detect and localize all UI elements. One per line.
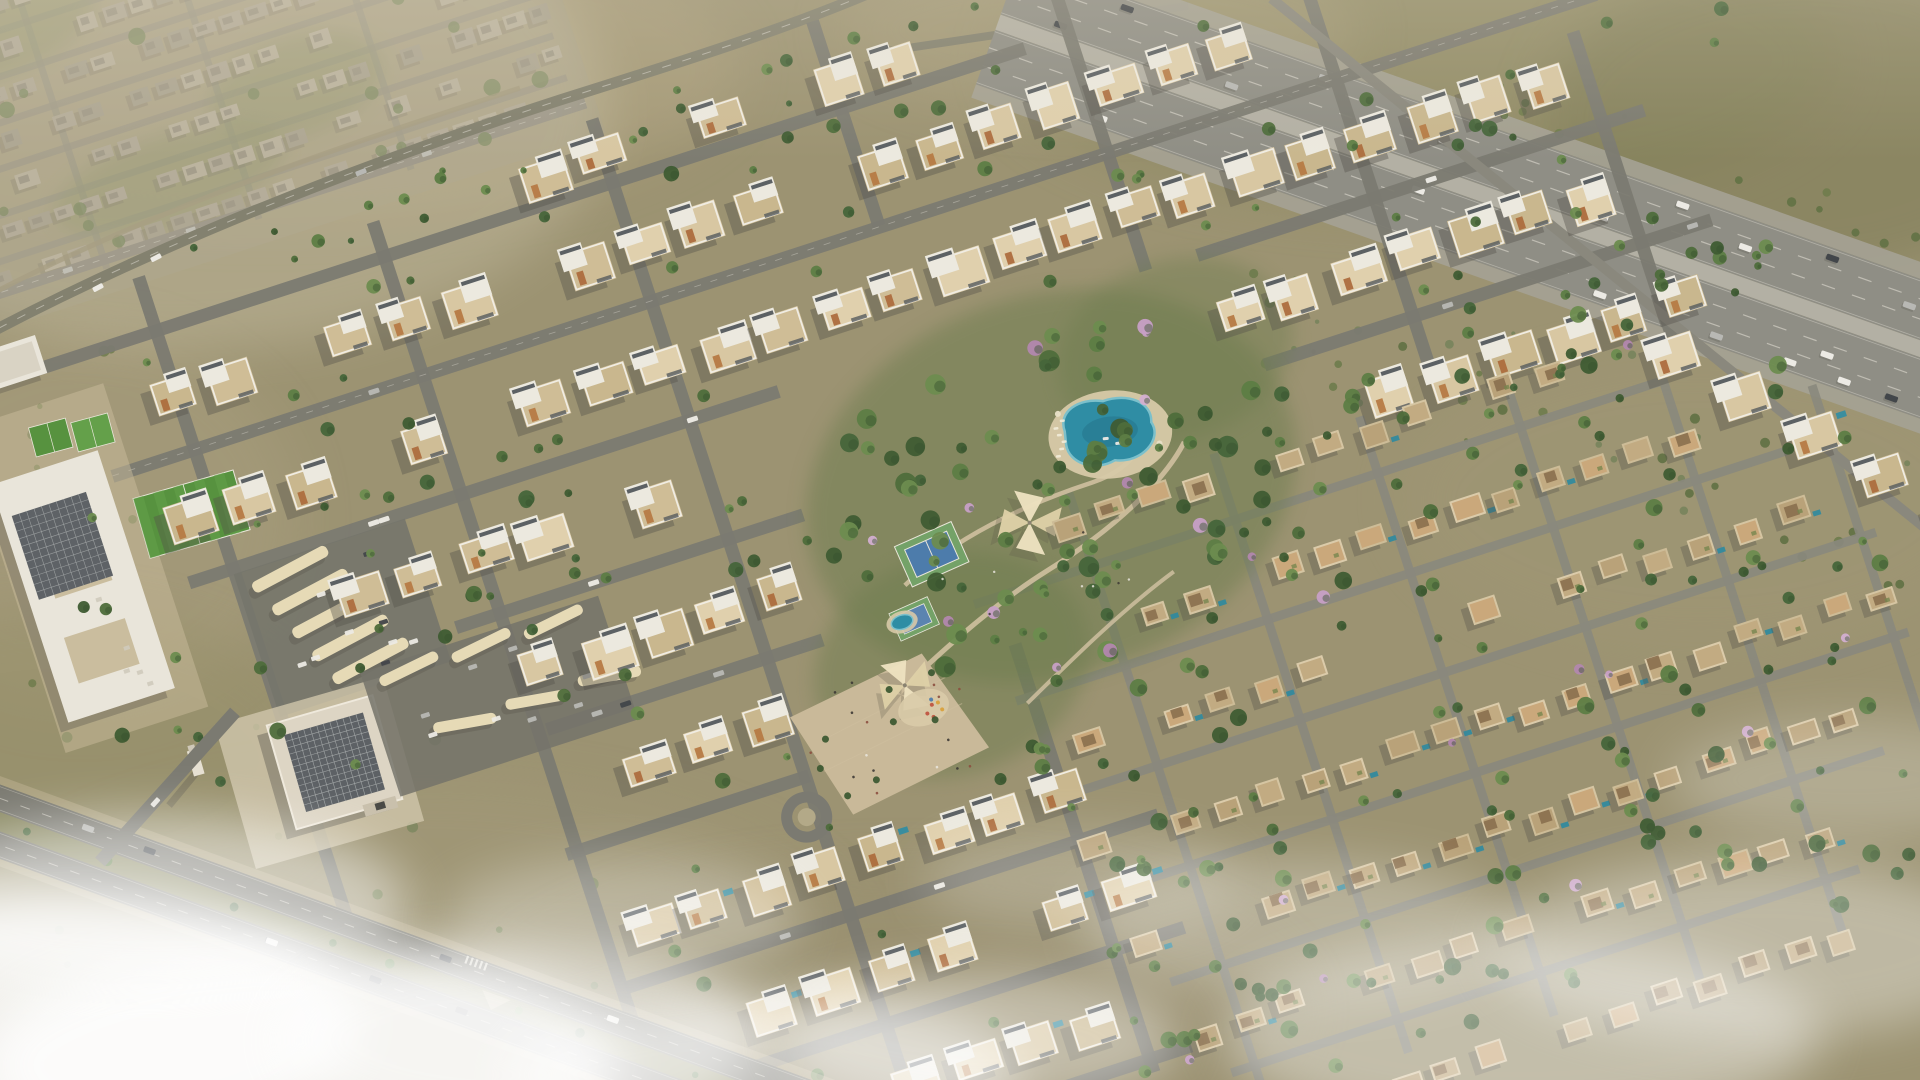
bush bbox=[1895, 580, 1904, 589]
bush bbox=[1904, 460, 1910, 466]
bush bbox=[1595, 441, 1602, 448]
roundabout bbox=[781, 792, 831, 842]
cloud bbox=[920, 830, 1240, 930]
aerial-community-render bbox=[0, 0, 1920, 1080]
bush bbox=[1611, 456, 1618, 463]
cloud bbox=[440, 860, 800, 980]
scene-canvas bbox=[0, 0, 1920, 1080]
bush bbox=[1690, 414, 1700, 424]
bush bbox=[1497, 405, 1507, 415]
haze-overlay bbox=[0, 0, 1920, 400]
bush bbox=[1780, 535, 1789, 544]
bush bbox=[1685, 489, 1694, 498]
bush bbox=[1680, 506, 1688, 514]
bush bbox=[1760, 438, 1770, 448]
bush bbox=[28, 679, 36, 687]
bush bbox=[1711, 483, 1718, 490]
